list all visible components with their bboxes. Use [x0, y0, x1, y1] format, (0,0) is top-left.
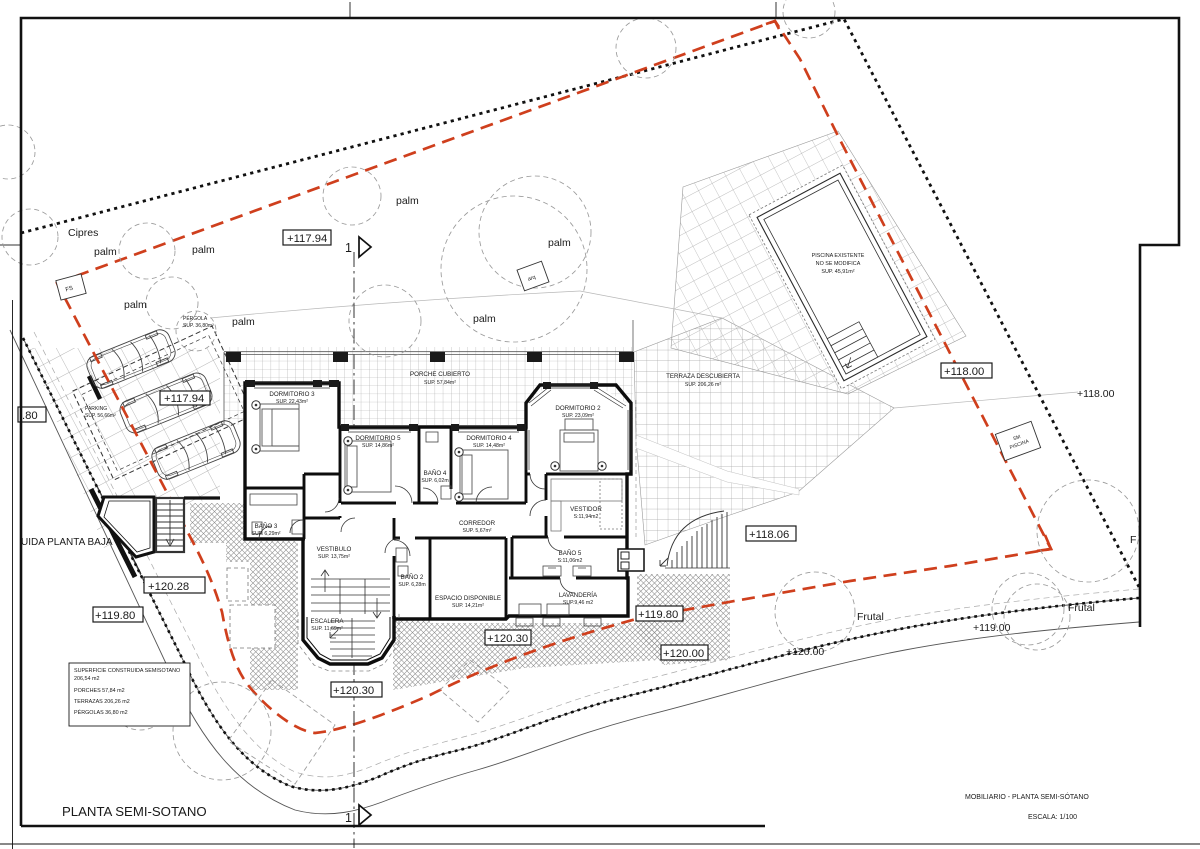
svg-text:S:11,94m2: S:11,94m2 [574, 514, 599, 520]
svg-text:palm: palm [396, 195, 419, 207]
svg-text:SUP. 13,75m²: SUP. 13,75m² [318, 554, 350, 560]
svg-text:Frutal: Frutal [1068, 602, 1095, 614]
svg-text:SUP. 23,09m²: SUP. 23,09m² [562, 413, 594, 419]
svg-text:SUP. 56,66m²: SUP. 56,66m² [85, 413, 116, 419]
svg-text:PORCHES 57,84 m2: PORCHES 57,84 m2 [74, 688, 125, 694]
svg-text:palm: palm [548, 237, 571, 249]
svg-text:SUP. 14,48m²: SUP. 14,48m² [473, 443, 505, 449]
svg-text:+119.80: +119.80 [95, 610, 135, 622]
svg-text:DORMITORIO 3: DORMITORIO 3 [269, 391, 315, 398]
svg-text:NO SE MODIFICA: NO SE MODIFICA [816, 261, 861, 267]
svg-text:+120.30: +120.30 [333, 685, 374, 697]
svg-text:BAÑO 4: BAÑO 4 [424, 470, 447, 477]
svg-text:PÉRGOLAS 36,80 m2: PÉRGOLAS 36,80 m2 [74, 709, 128, 716]
svg-text:palm: palm [473, 313, 496, 325]
svg-text:Frutal: Frutal [857, 611, 884, 623]
svg-text:SUPERFICIE CONSTRUIDA SEMISOTA: SUPERFICIE CONSTRUIDA SEMISOTANO [74, 668, 180, 674]
svg-text:ESCALERA: ESCALERA [310, 618, 344, 625]
svg-text:+120.00: +120.00 [663, 648, 704, 660]
svg-text:SUP. 206,26 m²: SUP. 206,26 m² [685, 382, 722, 388]
svg-text:SUP. 6,29m²: SUP. 6,29m² [251, 531, 280, 537]
svg-text:UIDA PLANTA BAJA: UIDA PLANTA BAJA [21, 537, 113, 548]
svg-text:+119.00: +119.00 [973, 622, 1011, 634]
svg-text:1: 1 [345, 811, 352, 825]
svg-text:SUP. 57,84m²: SUP. 57,84m² [424, 380, 456, 386]
svg-text:SUP. 6,28m: SUP. 6,28m [398, 582, 425, 588]
svg-text:+120.30: +120.30 [487, 633, 528, 645]
svg-text:+117.94: +117.94 [287, 233, 327, 245]
svg-text:1: 1 [345, 241, 352, 255]
svg-text:palm: palm [124, 299, 147, 311]
svg-text:TERRAZA DESCUBIERTA: TERRAZA DESCUBIERTA [666, 373, 741, 380]
svg-text:PLANTA SEMI-SOTANO: PLANTA SEMI-SOTANO [62, 804, 207, 819]
svg-text:SUP. 36,80m²: SUP. 36,80m² [183, 323, 214, 329]
svg-text:ESCALA: 1/100: ESCALA: 1/100 [1028, 814, 1077, 821]
svg-text:PÉRGOLA: PÉRGOLA [183, 315, 208, 322]
svg-text:LAVANDERÍA: LAVANDERÍA [559, 592, 598, 599]
svg-text:SUP. 45,91m²: SUP. 45,91m² [821, 269, 854, 275]
svg-text:+119.80: +119.80 [638, 609, 678, 621]
svg-text:PORCHE CUBIERTO: PORCHE CUBIERTO [410, 371, 470, 378]
svg-text:BAÑO 5: BAÑO 5 [559, 550, 582, 557]
svg-text:SUP. 22,43m²: SUP. 22,43m² [276, 399, 308, 405]
svg-text:+120.28: +120.28 [148, 581, 189, 593]
svg-text:palm: palm [94, 246, 117, 258]
svg-text:PARKING: PARKING [85, 406, 107, 412]
svg-text:palm: palm [232, 316, 255, 328]
svg-text:F: F [1130, 534, 1136, 546]
svg-text:BAÑO 2: BAÑO 2 [401, 574, 424, 581]
svg-text:DORMITORIO 4: DORMITORIO 4 [466, 435, 512, 442]
svg-text:BAÑO 3: BAÑO 3 [255, 523, 278, 530]
svg-text:SUP. 14,21m²: SUP. 14,21m² [452, 603, 484, 609]
svg-text:DORMITORIO 5: DORMITORIO 5 [355, 435, 401, 442]
svg-text:VESTIDOR: VESTIDOR [570, 506, 602, 513]
svg-text:S:11,06m2: S:11,06m2 [558, 558, 583, 564]
svg-text:MOBILIARIO - PLANTA SEMI-SÓTAN: MOBILIARIO - PLANTA SEMI-SÓTANO [965, 792, 1089, 801]
svg-text:SUP. 6,02m: SUP. 6,02m [421, 478, 448, 484]
svg-text:CORREDOR: CORREDOR [459, 520, 496, 527]
svg-text:SUP. 14,86m²: SUP. 14,86m² [362, 443, 394, 449]
svg-text:SUP. 5,67m²: SUP. 5,67m² [462, 528, 491, 534]
svg-text:DORMITORIO 2: DORMITORIO 2 [555, 405, 601, 412]
svg-text:206,54 m2: 206,54 m2 [74, 676, 99, 682]
svg-text:+117.94: +117.94 [164, 393, 204, 405]
svg-text:+120.00: +120.00 [786, 646, 824, 658]
svg-text:.80: .80 [22, 410, 38, 422]
svg-text:PISCINA EXISTENTE: PISCINA EXISTENTE [812, 253, 865, 259]
svg-text:SUP. 11,69m²: SUP. 11,69m² [311, 626, 343, 632]
svg-text:palm: palm [192, 244, 215, 256]
svg-text:+118.00: +118.00 [944, 366, 984, 378]
svg-text:VESTIBULO: VESTIBULO [317, 546, 352, 553]
svg-text:+118.06: +118.06 [749, 529, 789, 541]
svg-text:+118.00: +118.00 [1077, 388, 1115, 400]
svg-text:TERRAZAS 206,26 m2: TERRAZAS 206,26 m2 [74, 699, 130, 705]
svg-text:Cipres: Cipres [68, 227, 98, 239]
svg-text:ESPACIO DISPONIBLE: ESPACIO DISPONIBLE [435, 595, 501, 602]
svg-text:SUP.9,46 m2: SUP.9,46 m2 [563, 600, 593, 606]
